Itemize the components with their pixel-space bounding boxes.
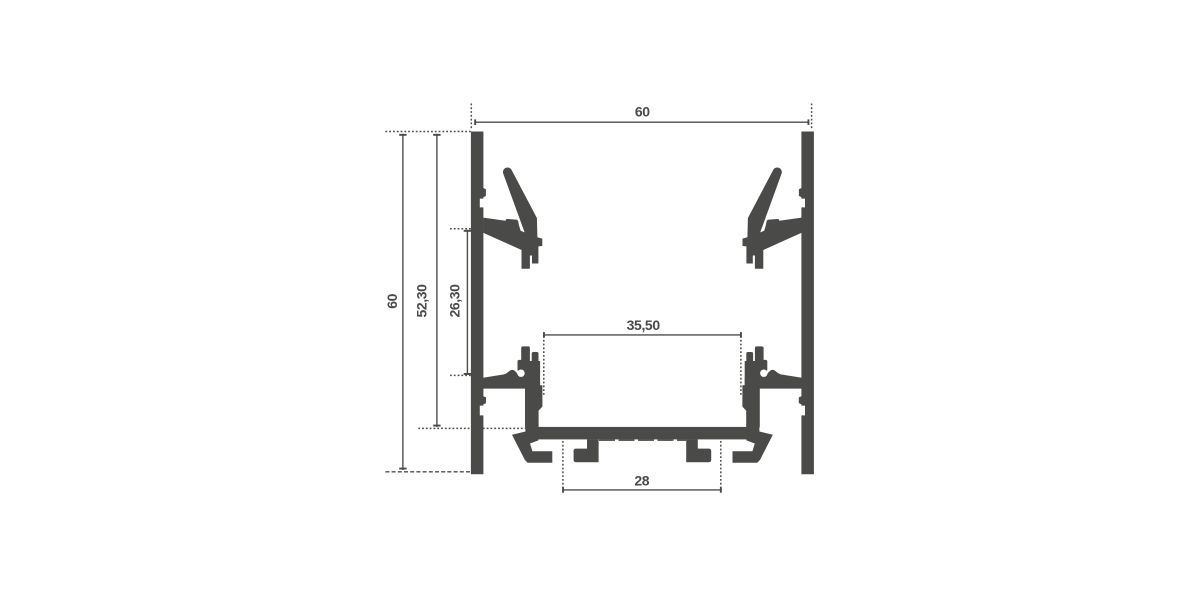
svg-text:35,50: 35,50 bbox=[627, 317, 661, 333]
svg-text:60: 60 bbox=[635, 104, 650, 120]
svg-text:28: 28 bbox=[634, 473, 649, 489]
svg-text:60: 60 bbox=[384, 293, 400, 308]
svg-text:26,30: 26,30 bbox=[446, 284, 462, 318]
svg-text:52,30: 52,30 bbox=[414, 284, 430, 318]
